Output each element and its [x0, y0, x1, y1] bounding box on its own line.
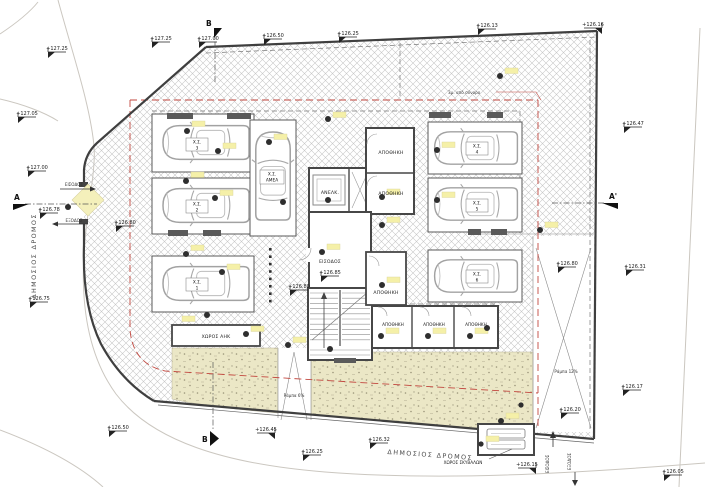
parking-label-number: 3: [196, 146, 199, 152]
elevation: +126.80: [114, 220, 136, 226]
elevation: +127.00: [197, 36, 219, 42]
plan-svg: 3μ. από σύνορο A A' B B: [0, 0, 705, 487]
parking-label-prefix: Χ.Σ.: [473, 272, 481, 278]
parking-label-disabled: ΑΜΕΑ: [266, 178, 278, 184]
storage-label: ΑΠΟΘΗΚΗ: [465, 322, 487, 327]
elevation: +126.17: [621, 384, 643, 390]
section-a-label: A: [14, 193, 20, 202]
elevation: +127.05: [16, 111, 38, 117]
elevation: +126.31: [624, 264, 646, 270]
road-label-bottom: ΔΗΜΟΣΙΟΣ ΔΡΟΜΟΣ: [387, 448, 473, 462]
road-label-left: ΔΗΜΟΣΙΟΣ ΔΡΟΜΟΣ: [30, 213, 38, 299]
storage-label: ΑΠΟΘΗΚΗ: [423, 322, 445, 327]
elevation: +126.50: [107, 425, 129, 431]
elevation: +126.75: [28, 296, 50, 302]
parking-label-number: 5: [476, 207, 479, 213]
storage-label: ΑΠΟΘΗΚΗ: [378, 191, 403, 197]
elevation: +126.25: [337, 31, 359, 37]
parking-label-prefix: Χ.Σ.: [268, 172, 276, 178]
elevation: +126.25: [301, 449, 323, 455]
elevation: +127.00: [26, 165, 48, 171]
section-a2-label: A': [609, 192, 617, 201]
storage-label: ΑΠΟΘΗΚΗ: [373, 290, 398, 296]
entrance-left-out-label: ΕΞΟΔΟΣ: [65, 218, 82, 223]
storage-label: ΑΠΟΘΗΚΗ: [378, 150, 403, 156]
elevation: +126.85: [319, 270, 341, 276]
ramp6-label: Ράμπα 6%: [284, 393, 305, 398]
elevation: +126.47: [622, 121, 644, 127]
parking-label-number: 2: [196, 208, 199, 214]
entrance-right-out-label: ΕΞΟΔΟΣ: [567, 453, 572, 470]
parking-label-prefix: Χ.Σ.: [193, 140, 201, 146]
elevation: +126.78: [38, 207, 60, 213]
parking-label-number: 4: [476, 150, 479, 156]
elevation: +126.15: [516, 462, 538, 468]
elevation: +126.05: [662, 469, 684, 475]
elevation: +126.80: [556, 261, 578, 267]
entrance-right-in-label: ΕΙΣΟΔΟΣ: [545, 454, 550, 473]
storage-label: ΑΠΟΘΗΚΗ: [382, 322, 404, 327]
elevation: +126.20: [559, 407, 581, 413]
site-plan-drawing: 3μ. από σύνορο A A' B B: [0, 0, 705, 487]
parking-label-prefix: Χ.Σ.: [193, 202, 201, 208]
elevation: +126.32: [368, 437, 390, 443]
elevation: +126.80: [288, 284, 310, 290]
elevator-label: ΑΝΕΛΚ.: [321, 190, 339, 196]
hall-label: ΕΙΣΟΔΟΣ: [319, 259, 341, 265]
elevation: +127.25: [150, 36, 172, 42]
entrance-left-in-label: ΕΙΣΟΔΟΣ: [65, 182, 84, 187]
elevation: +127.25: [46, 46, 68, 52]
parking-label-prefix: Χ.Σ.: [473, 144, 481, 150]
parking-label-prefix: Χ.Σ.: [473, 201, 481, 207]
parking-label-prefix: Χ.Σ.: [193, 280, 201, 286]
parking-label-number: 6: [476, 278, 479, 284]
elevation: +126.13: [476, 23, 498, 29]
setback-note: 3μ. από σύνορο: [448, 90, 481, 95]
elevation: +126.50: [262, 33, 284, 39]
electrical-room-label: ΧΩΡΟΣ ΑΗΚ: [202, 334, 232, 340]
section-b-top-label: B: [206, 19, 212, 28]
elevation: +126.45: [255, 427, 277, 433]
parking-label-number: 1: [196, 286, 199, 292]
section-b-bottom-label: B: [202, 435, 208, 444]
ramp12-label: Ράμπα 12%: [554, 369, 577, 374]
elevation: +126.16: [582, 22, 604, 28]
